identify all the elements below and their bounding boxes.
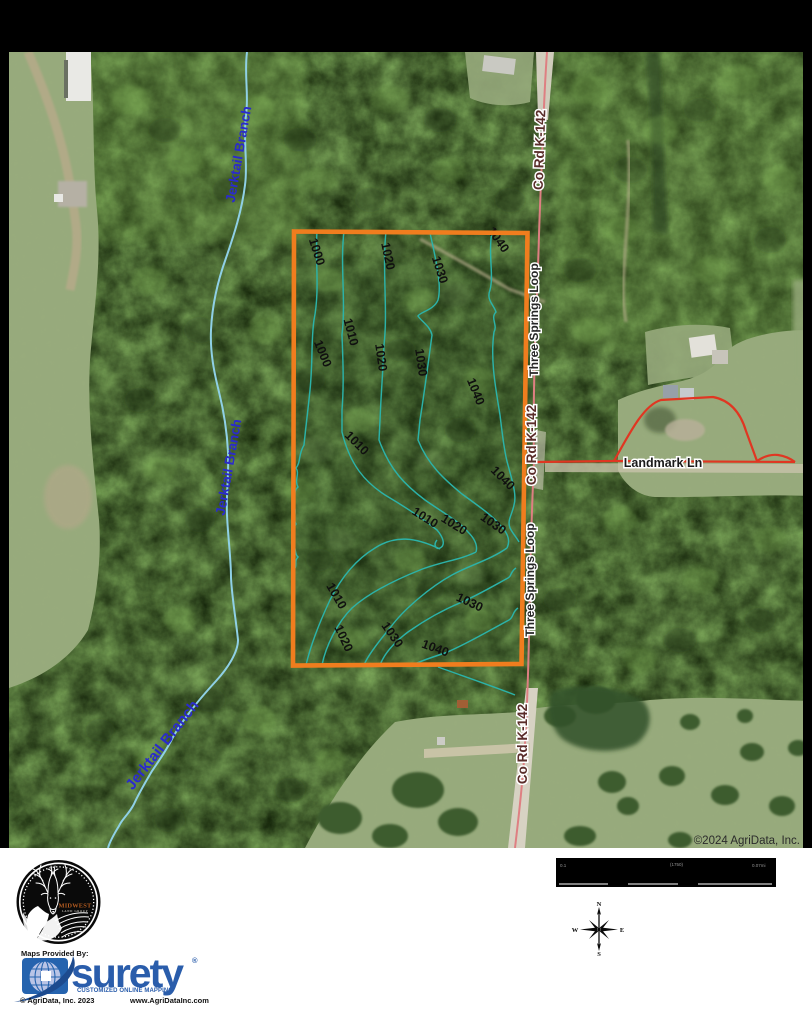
svg-text:(1750): (1750)	[670, 862, 684, 867]
svg-text:Three Springs Loop: Three Springs Loop	[527, 263, 541, 376]
svg-text:www.AgriDataInc.com: www.AgriDataInc.com	[129, 996, 209, 1005]
svg-text:Landmark Ln: Landmark Ln	[624, 456, 703, 470]
svg-text:Three Springs Loop: Three Springs Loop	[523, 523, 537, 636]
svg-text:0.07mi: 0.07mi	[752, 863, 766, 868]
svg-text:0.1: 0.1	[560, 863, 567, 868]
svg-text:LAND GROUP: LAND GROUP	[62, 909, 88, 913]
svg-text:©2024 AgriData, Inc.: ©2024 AgriData, Inc.	[694, 835, 800, 847]
svg-text:E: E	[620, 927, 624, 934]
svg-text:Co Rd K-142: Co Rd K-142	[524, 405, 539, 485]
svg-text:W: W	[572, 927, 579, 934]
svg-text:®: ®	[192, 956, 198, 965]
svg-text:N: N	[597, 901, 602, 908]
svg-text:CUSTOMIZED ONLINE MAPPING: CUSTOMIZED ONLINE MAPPING	[77, 988, 173, 994]
svg-text:Co Rd K-142: Co Rd K-142	[515, 704, 530, 784]
svg-text:© AgriData, Inc. 2023: © AgriData, Inc. 2023	[20, 996, 94, 1005]
svg-text:S: S	[597, 951, 601, 958]
svg-text:Co Rd K-142: Co Rd K-142	[531, 109, 549, 190]
